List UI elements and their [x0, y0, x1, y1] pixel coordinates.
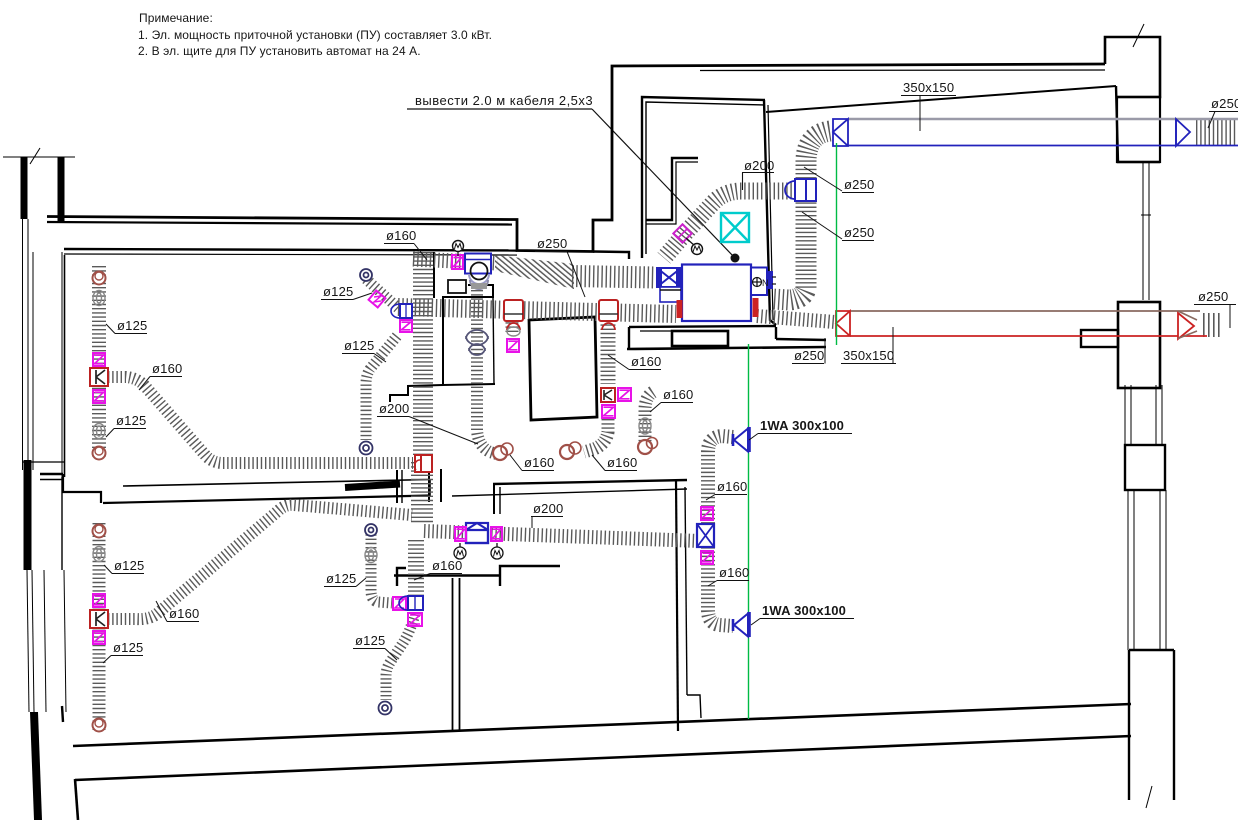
svg-text:ø125: ø125 [116, 413, 146, 428]
svg-text:ø160: ø160 [152, 361, 182, 376]
svg-text:ø160: ø160 [432, 558, 462, 573]
svg-text:ø200: ø200 [379, 401, 409, 416]
svg-text:ø125: ø125 [355, 633, 385, 648]
svg-text:ø250: ø250 [537, 236, 567, 251]
svg-text:ø250: ø250 [794, 348, 824, 363]
svg-text:ø160: ø160 [663, 387, 693, 402]
svg-text:ø160: ø160 [607, 455, 637, 470]
svg-text:ø160: ø160 [386, 228, 416, 243]
svg-text:ø125: ø125 [326, 571, 356, 586]
svg-text:ø160: ø160 [717, 479, 747, 494]
svg-text:ø160: ø160 [719, 565, 749, 580]
svg-text:ø160: ø160 [169, 606, 199, 621]
svg-text:ø200: ø200 [533, 501, 563, 516]
svg-text:350х150: 350х150 [843, 348, 894, 363]
svg-text:вывести 2.0 м кабеля 2,5х3: вывести 2.0 м кабеля 2,5х3 [415, 93, 593, 108]
svg-text:350х150: 350х150 [903, 80, 954, 95]
svg-text:1WA 300х100: 1WA 300х100 [762, 603, 846, 618]
svg-text:1. Эл. мощность приточной уста: 1. Эл. мощность приточной установки (ПУ)… [138, 28, 492, 42]
svg-text:ø160: ø160 [524, 455, 554, 470]
svg-text:ø200: ø200 [744, 158, 774, 173]
svg-text:ø125: ø125 [114, 558, 144, 573]
svg-text:Примечание:: Примечание: [139, 11, 213, 25]
svg-text:ø250: ø250 [1211, 96, 1238, 111]
svg-text:N: N [762, 278, 769, 288]
svg-text:1WA 300х100: 1WA 300х100 [760, 418, 844, 433]
svg-text:2. В эл. щите для ПУ установит: 2. В эл. щите для ПУ установить автомат … [138, 44, 421, 58]
svg-text:ø125: ø125 [113, 640, 143, 655]
svg-text:ø250: ø250 [844, 225, 874, 240]
svg-text:ø250: ø250 [1198, 289, 1228, 304]
svg-text:ø125: ø125 [344, 338, 374, 353]
svg-text:ø125: ø125 [323, 284, 353, 299]
svg-text:ø160: ø160 [631, 354, 661, 369]
svg-text:ø125: ø125 [117, 318, 147, 333]
svg-text:ø250: ø250 [844, 177, 874, 192]
